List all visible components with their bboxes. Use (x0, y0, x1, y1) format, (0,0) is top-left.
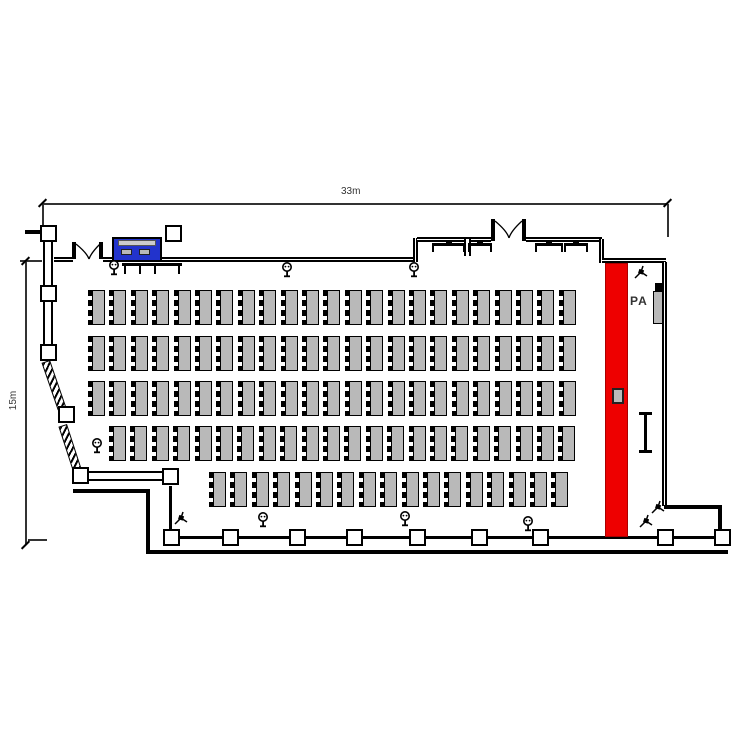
delegate-table-row5 (487, 472, 504, 507)
table-top (477, 426, 490, 461)
table-top (477, 290, 490, 325)
table-top (534, 472, 547, 507)
delegate-table-row2 (388, 336, 405, 371)
table-top (370, 426, 383, 461)
delegate-table-row2 (559, 336, 576, 371)
delegate-table-row1 (473, 290, 490, 325)
alcove-table-leg (535, 243, 537, 252)
table-top (306, 336, 319, 371)
column-pillar (409, 529, 426, 546)
delegate-table-row3 (152, 381, 169, 416)
table-top (541, 426, 554, 461)
delegate-table-row4 (237, 426, 254, 461)
table-top (541, 336, 554, 371)
table-top (199, 426, 212, 461)
lectern (612, 388, 624, 404)
table-top (178, 336, 191, 371)
column-pillar (40, 285, 57, 302)
floor-socket-icon (257, 512, 269, 529)
delegate-table-row1 (302, 290, 319, 325)
table-top (284, 426, 297, 461)
delegate-table-row4 (558, 426, 575, 461)
delegate-table-row2 (109, 336, 126, 371)
delegate-table-row2 (323, 336, 340, 371)
pa-speaker-knob (655, 283, 662, 291)
delegate-table-row4 (494, 426, 511, 461)
delegate-table-row5 (209, 472, 226, 507)
column-pillar (58, 406, 75, 423)
table-top (178, 381, 191, 416)
table-top (499, 336, 512, 371)
table-top (213, 472, 226, 507)
delegate-table-row3 (537, 381, 554, 416)
alcove-table-chair (446, 241, 452, 246)
table-top (499, 381, 512, 416)
table-top (541, 290, 554, 325)
trestle-leg (124, 263, 126, 274)
floor-socket-icon (399, 511, 411, 528)
delegate-table-row1 (345, 290, 362, 325)
delegate-table-row1 (388, 290, 405, 325)
av-desk-monitor (139, 249, 150, 255)
column-pillar (222, 529, 239, 546)
delegate-table-row5 (402, 472, 419, 507)
delegate-table-row4 (537, 426, 554, 461)
table-top (299, 472, 312, 507)
column-pillar (714, 529, 731, 546)
table-top (563, 336, 576, 371)
delegate-table-row3 (366, 381, 383, 416)
alcove-table-chair (546, 241, 552, 246)
delegate-table-row3 (281, 381, 298, 416)
table-top (306, 381, 319, 416)
table-top (370, 336, 383, 371)
delegate-table-row2 (495, 336, 512, 371)
column-pillar (289, 529, 306, 546)
table-top (327, 426, 340, 461)
delegate-table-row3 (345, 381, 362, 416)
delegate-table-row1 (559, 290, 576, 325)
table-top (370, 381, 383, 416)
floor-socket-icon (408, 262, 420, 279)
delegate-table-row4 (152, 426, 169, 461)
column-pillar (471, 529, 488, 546)
table-top (563, 381, 576, 416)
camera-tripod-icon (650, 500, 666, 516)
column-pillar (162, 468, 179, 485)
table-top (520, 381, 533, 416)
delegate-table-row4 (387, 426, 404, 461)
table-top (563, 290, 576, 325)
delegate-table-row4 (451, 426, 468, 461)
table-top (327, 290, 340, 325)
table-top (348, 426, 361, 461)
i-beam-marker (644, 412, 647, 453)
table-top (413, 381, 426, 416)
floor-plan: 33m 15m PA (0, 0, 750, 750)
table-top (220, 336, 233, 371)
delegate-table-row4 (323, 426, 340, 461)
delegate-table-row1 (495, 290, 512, 325)
delegate-table-row3 (109, 381, 126, 416)
delegate-table-row3 (516, 381, 533, 416)
delegate-table-row3 (323, 381, 340, 416)
table-top (256, 472, 269, 507)
table-top (499, 290, 512, 325)
table-top (470, 472, 483, 507)
alcove-table-leg (586, 243, 588, 252)
table-top (456, 290, 469, 325)
delegate-table-row5 (316, 472, 333, 507)
table-top (242, 336, 255, 371)
floor-socket-icon (281, 262, 293, 279)
delegate-table-row1 (409, 290, 426, 325)
delegate-table-row4 (430, 426, 447, 461)
delegate-table-row2 (131, 336, 148, 371)
table-top (263, 336, 276, 371)
delegate-table-row1 (195, 290, 212, 325)
table-top (242, 381, 255, 416)
table-top (156, 290, 169, 325)
delegate-table-row2 (345, 336, 362, 371)
alcove-table-leg (432, 243, 434, 252)
table-top (341, 472, 354, 507)
table-top (384, 472, 397, 507)
delegate-table-row3 (559, 381, 576, 416)
pa-speaker (653, 291, 663, 324)
floor-socket-icon (91, 438, 103, 455)
delegate-table-row4 (109, 426, 126, 461)
column-pillar (40, 225, 57, 242)
table-top (392, 381, 405, 416)
delegate-table-row5 (530, 472, 547, 507)
delegate-table-row4 (195, 426, 212, 461)
table-top (413, 336, 426, 371)
alcove-table-leg (463, 243, 465, 252)
delegate-table-row5 (466, 472, 483, 507)
delegate-table-row4 (302, 426, 319, 461)
delegate-table-row1 (88, 290, 105, 325)
delegate-table-row5 (509, 472, 526, 507)
table-top (448, 472, 461, 507)
delegate-table-row2 (366, 336, 383, 371)
delegate-table-row3 (195, 381, 212, 416)
delegate-table-row1 (216, 290, 233, 325)
delegate-table-row3 (388, 381, 405, 416)
column-pillar (346, 529, 363, 546)
table-top (327, 336, 340, 371)
delegate-table-row3 (409, 381, 426, 416)
delegate-table-row2 (452, 336, 469, 371)
table-top (220, 290, 233, 325)
delegate-table-row5 (337, 472, 354, 507)
table-top (306, 290, 319, 325)
table-top (242, 290, 255, 325)
table-top (199, 381, 212, 416)
delegate-table-row1 (238, 290, 255, 325)
table-top (277, 472, 290, 507)
table-top (156, 381, 169, 416)
delegate-table-row2 (281, 336, 298, 371)
delegate-table-row3 (452, 381, 469, 416)
av-desk-monitor (121, 249, 132, 255)
table-top (434, 290, 447, 325)
delegate-table-row3 (473, 381, 490, 416)
delegate-table-row1 (259, 290, 276, 325)
table-top (178, 290, 191, 325)
table-top (177, 426, 190, 461)
delegate-table-row5 (252, 472, 269, 507)
table-top (320, 472, 333, 507)
table-top (92, 290, 105, 325)
column-pillar (532, 529, 549, 546)
delegate-table-row1 (174, 290, 191, 325)
alcove-table-chair (477, 241, 483, 246)
delegate-table-row3 (88, 381, 105, 416)
delegate-table-row2 (537, 336, 554, 371)
delegate-table-row2 (216, 336, 233, 371)
camera-tripod-icon (173, 511, 189, 527)
table-top (498, 426, 511, 461)
table-top (199, 290, 212, 325)
table-top (306, 426, 319, 461)
delegate-table-row3 (238, 381, 255, 416)
alcove-table-leg (564, 243, 566, 252)
delegate-table-row2 (259, 336, 276, 371)
delegate-table-row2 (430, 336, 447, 371)
table-top (520, 336, 533, 371)
door-swing-arcs (0, 0, 750, 750)
floor-socket-icon (108, 260, 120, 277)
camera-tripod-icon (633, 265, 649, 281)
delegate-table-row4 (173, 426, 190, 461)
table-top (285, 290, 298, 325)
delegate-table-row3 (174, 381, 191, 416)
delegate-table-row2 (238, 336, 255, 371)
alcove-table-chair (573, 241, 579, 246)
delegate-table-row1 (323, 290, 340, 325)
delegate-table-row1 (452, 290, 469, 325)
delegate-table-row2 (88, 336, 105, 371)
delegate-table-row1 (430, 290, 447, 325)
column-pillar (163, 529, 180, 546)
table-top (434, 426, 447, 461)
table-top (477, 381, 490, 416)
delegate-table-row2 (516, 336, 533, 371)
delegate-table-row5 (230, 472, 247, 507)
delegate-table-row5 (380, 472, 397, 507)
table-top (349, 290, 362, 325)
delegate-table-row1 (131, 290, 148, 325)
table-top (370, 290, 383, 325)
delegate-table-row2 (152, 336, 169, 371)
table-top (392, 336, 405, 371)
delegate-table-row5 (359, 472, 376, 507)
table-top (413, 426, 426, 461)
table-top (134, 426, 147, 461)
delegate-table-row1 (366, 290, 383, 325)
table-top (234, 472, 247, 507)
delegate-table-row3 (216, 381, 233, 416)
table-top (135, 336, 148, 371)
delegate-table-row5 (444, 472, 461, 507)
delegate-table-row1 (537, 290, 554, 325)
table-top (541, 381, 554, 416)
trestle-leg (139, 263, 141, 274)
delegate-table-row3 (302, 381, 319, 416)
delegate-table-row4 (344, 426, 361, 461)
delegate-table-row2 (174, 336, 191, 371)
table-top (113, 381, 126, 416)
table-top (113, 426, 126, 461)
av-desk-console (118, 240, 156, 246)
delegate-table-row2 (473, 336, 490, 371)
delegate-table-row4 (516, 426, 533, 461)
delegate-table-row1 (516, 290, 533, 325)
table-top (263, 290, 276, 325)
table-top (427, 472, 440, 507)
trestle-leg (154, 263, 156, 274)
delegate-table-row4 (473, 426, 490, 461)
delegate-table-row3 (259, 381, 276, 416)
delegate-table-row2 (302, 336, 319, 371)
table-top (477, 336, 490, 371)
delegate-table-row4 (280, 426, 297, 461)
delegate-table-row1 (281, 290, 298, 325)
delegate-table-row4 (130, 426, 147, 461)
delegate-table-row2 (195, 336, 212, 371)
table-top (434, 336, 447, 371)
table-top (220, 426, 233, 461)
table-top (113, 336, 126, 371)
delegate-table-row4 (366, 426, 383, 461)
table-top (92, 381, 105, 416)
delegate-table-row1 (109, 290, 126, 325)
pa-label: PA (630, 294, 648, 308)
camera-tripod-icon (638, 514, 654, 530)
delegate-table-row4 (259, 426, 276, 461)
table-top (456, 336, 469, 371)
table-top (363, 472, 376, 507)
table-top (92, 336, 105, 371)
alcove-table-leg (561, 243, 563, 252)
delegate-table-row5 (273, 472, 290, 507)
alcove-table-leg (490, 243, 492, 252)
table-top (113, 290, 126, 325)
delegate-table-row3 (430, 381, 447, 416)
table-top (156, 426, 169, 461)
table-top (285, 381, 298, 416)
table-top (434, 381, 447, 416)
trestle-leg (178, 263, 180, 274)
delegate-table-row5 (295, 472, 312, 507)
table-top (520, 290, 533, 325)
table-top (513, 472, 526, 507)
table-top (349, 336, 362, 371)
column-pillar (657, 529, 674, 546)
alcove-table-leg (468, 243, 470, 252)
delegate-table-row4 (216, 426, 233, 461)
table-top (349, 381, 362, 416)
delegate-table-row5 (423, 472, 440, 507)
delegate-table-row2 (409, 336, 426, 371)
table-top (263, 381, 276, 416)
delegate-table-row5 (551, 472, 568, 507)
table-top (555, 472, 568, 507)
table-top (156, 336, 169, 371)
table-top (406, 472, 419, 507)
table-top (327, 381, 340, 416)
delegate-table-row4 (409, 426, 426, 461)
column-pillar (165, 225, 182, 242)
delegate-table-row3 (131, 381, 148, 416)
table-top (562, 426, 575, 461)
column-pillar (72, 467, 89, 484)
table-top (220, 381, 233, 416)
column-pillar (40, 344, 57, 361)
table-top (135, 381, 148, 416)
table-top (135, 290, 148, 325)
table-top (455, 426, 468, 461)
table-top (491, 472, 504, 507)
table-top (392, 290, 405, 325)
delegate-table-row1 (152, 290, 169, 325)
table-top (520, 426, 533, 461)
table-top (391, 426, 404, 461)
table-top (285, 336, 298, 371)
floor-socket-icon (522, 516, 534, 533)
table-top (199, 336, 212, 371)
delegate-table-row3 (495, 381, 512, 416)
table-top (241, 426, 254, 461)
table-top (413, 290, 426, 325)
table-top (263, 426, 276, 461)
table-top (456, 381, 469, 416)
